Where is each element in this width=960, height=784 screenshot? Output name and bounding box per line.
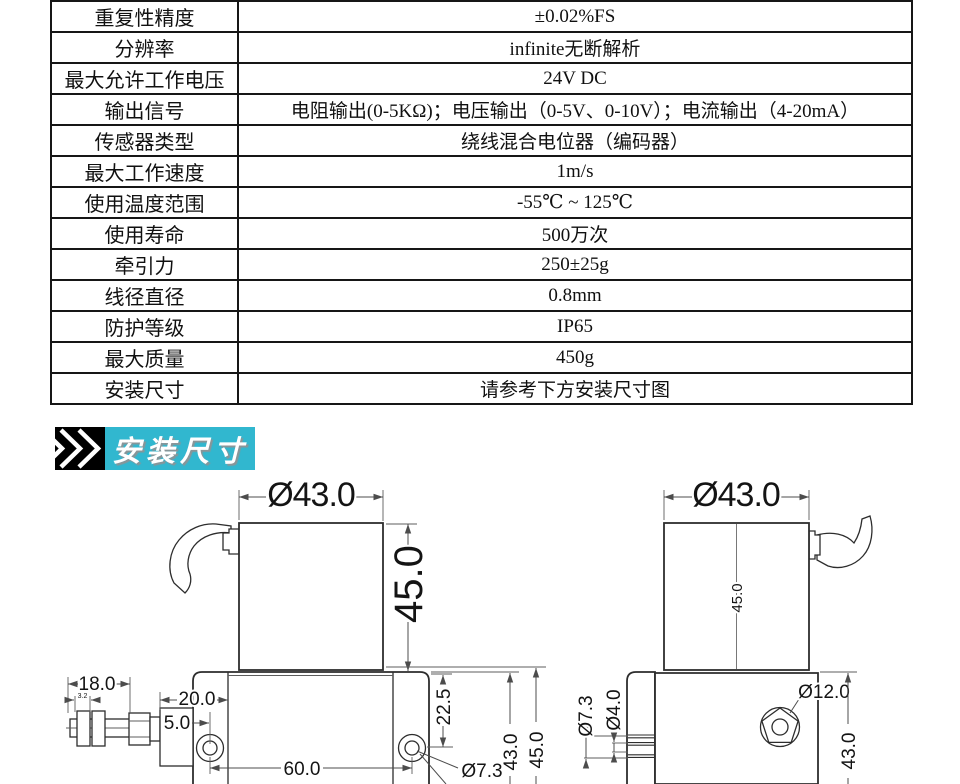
dim-front-top-diameter: Ø43.0: [267, 476, 355, 514]
spec-value: ±0.02%FS: [238, 1, 912, 32]
dim-boss-diameter: Ø12.0: [798, 682, 850, 703]
section-title: 安装尺寸: [105, 427, 255, 470]
cable-connector-left: [170, 524, 231, 593]
dim-side-base-height: 43.0: [839, 733, 860, 770]
datasheet-page: 重复性精度±0.02%FS 分辨率infinite无断解析 最大允许工作电压24…: [0, 0, 960, 784]
spec-label: 使用寿命: [51, 218, 238, 249]
spec-value: 500万次: [238, 218, 912, 249]
dim-side-body-height: 45.0: [729, 583, 746, 612]
dim-fitting-length: 18.0: [79, 674, 116, 695]
spec-value: 0.8mm: [238, 280, 912, 311]
spec-value: 450g: [238, 342, 912, 373]
table-row: 最大工作速度1m/s: [51, 156, 912, 187]
dim-hole-diameter: Ø7.3: [461, 761, 502, 782]
spec-value: 1m/s: [238, 156, 912, 187]
spec-label: 最大工作速度: [51, 156, 238, 187]
table-row: 分辨率infinite无断解析: [51, 32, 912, 63]
dim-bracket-width: 20.0: [179, 689, 216, 710]
cable-gland-step-right: [809, 531, 820, 559]
spec-value: 绕线混合电位器（编码器）: [238, 125, 912, 156]
table-row: 使用温度范围-55℃ ~ 125℃: [51, 187, 912, 218]
table-row: 最大允许工作电压24V DC: [51, 63, 912, 94]
dim-hole-top-offset: 22.5: [434, 689, 455, 726]
spec-label: 使用温度范围: [51, 187, 238, 218]
dim-base-height: 43.0: [501, 734, 522, 771]
spec-value: -55℃ ~ 125℃: [238, 187, 912, 218]
spec-label: 安装尺寸: [51, 373, 238, 404]
side-view-drawing: Ø43.0 45.0 Ø7.3 Ø4.0 Ø12.0 43.0: [576, 476, 872, 784]
dim-outlet-outer: Ø7.3: [576, 695, 597, 736]
installation-drawing: Ø43.0 45.0 18.0 3.2 20.0: [0, 470, 960, 784]
section-header: 安装尺寸: [55, 427, 255, 470]
cable-gland-step: [223, 529, 239, 554]
cable-connector-right: [817, 516, 872, 568]
spec-label: 线径直径: [51, 280, 238, 311]
spec-value: IP65: [238, 311, 912, 342]
double-chevron-icon: [55, 427, 105, 470]
front-cylinder: [239, 523, 383, 670]
table-row: 线径直径0.8mm: [51, 280, 912, 311]
dim-hole-spacing: 60.0: [284, 759, 321, 780]
spec-label: 传感器类型: [51, 125, 238, 156]
dim-base-total-height: 45.0: [527, 732, 548, 769]
table-row: 防护等级IP65: [51, 311, 912, 342]
table-row: 重复性精度±0.02%FS: [51, 1, 912, 32]
spec-value: 250±25g: [238, 249, 912, 280]
table-row: 输出信号电阻输出(0-5KΩ)；电压输出（0-5V、0-10V）；电流输出（4-…: [51, 94, 912, 125]
dim-side-top-diameter: Ø43.0: [692, 476, 780, 514]
spec-label: 牵引力: [51, 249, 238, 280]
spec-label: 最大允许工作电压: [51, 63, 238, 94]
dim-fitting-small: 3.2: [78, 693, 88, 700]
dim-front-body-height: 45.0: [387, 545, 431, 623]
pentagon-boss: [761, 708, 800, 747]
spec-value: 24V DC: [238, 63, 912, 94]
spec-value: 电阻输出(0-5KΩ)；电压输出（0-5V、0-10V）；电流输出（4-20mA…: [238, 94, 912, 125]
spec-table: 重复性精度±0.02%FS 分辨率infinite无断解析 最大允许工作电压24…: [50, 0, 913, 405]
spec-label: 分辨率: [51, 32, 238, 63]
spec-label: 输出信号: [51, 94, 238, 125]
dim-hole-edge-offset: 5.0: [164, 713, 190, 734]
table-row: 使用寿命500万次: [51, 218, 912, 249]
table-row: 牵引力250±25g: [51, 249, 912, 280]
side-flange-edge: [627, 672, 655, 784]
spec-label: 防护等级: [51, 311, 238, 342]
table-row: 最大质量450g: [51, 342, 912, 373]
dim-outlet-inner: Ø4.0: [604, 689, 625, 730]
spec-label: 重复性精度: [51, 1, 238, 32]
table-row: 传感器类型绕线混合电位器（编码器）: [51, 125, 912, 156]
spec-value: 请参考下方安装尺寸图: [238, 373, 912, 404]
spec-value: infinite无断解析: [238, 32, 912, 63]
spec-label: 最大质量: [51, 342, 238, 373]
table-row: 安装尺寸请参考下方安装尺寸图: [51, 373, 912, 404]
front-view-drawing: Ø43.0 45.0 18.0 3.2 20.0: [66, 476, 548, 784]
